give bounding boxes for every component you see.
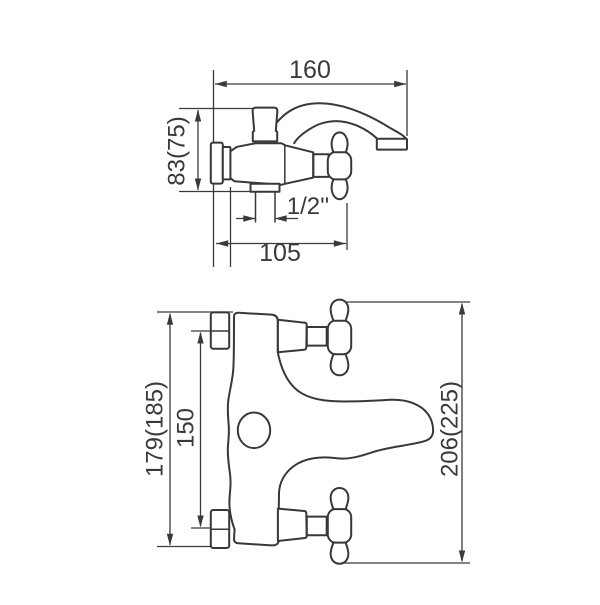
dim-overall-label: 179(185) <box>142 381 169 477</box>
arrow-left <box>215 81 227 87</box>
handle-hub-top <box>328 320 351 354</box>
dim-width-label: 160 <box>289 56 331 84</box>
spout-aerator <box>377 139 407 150</box>
arrow-right-in <box>243 215 255 221</box>
arrow-up <box>167 313 173 325</box>
handle-hub-bottom <box>328 509 351 543</box>
top-view-faucet <box>211 300 433 564</box>
handle-knob-bottom <box>332 179 348 199</box>
handle-bottom-knob-up <box>331 488 349 509</box>
arrow-right <box>394 81 406 87</box>
arrow-down <box>459 551 465 563</box>
supply-pipe-nut <box>251 184 280 192</box>
wall-flange-lip <box>223 147 231 179</box>
mixer-body <box>230 143 313 185</box>
handle-bottom-knob-down <box>331 543 349 564</box>
dim-height-label: 83(75) <box>164 116 191 185</box>
faucet-technical-drawing: 160 83(75) 1/2'' <box>0 0 600 600</box>
top-view: 179(185) 150 206(225) <box>142 300 471 564</box>
handle-knob-top <box>332 132 348 152</box>
dim-thread-label: 1/2'' <box>287 193 330 220</box>
arrow-up <box>195 110 201 122</box>
dim-thread-half-inch: 1/2'' <box>236 193 329 222</box>
arrow-down <box>195 179 201 191</box>
handle-stem <box>313 154 328 177</box>
dim-spacing-label: 150 <box>173 408 200 448</box>
valve-arm-bottom <box>278 509 307 541</box>
valve-arm-top <box>278 320 307 352</box>
handle-top-knob-down <box>331 354 349 375</box>
arrow-up <box>459 303 465 315</box>
side-view: 160 83(75) 1/2'' <box>164 56 408 267</box>
handle-hub <box>328 152 351 180</box>
wall-flange <box>211 143 223 184</box>
handle-stem-bottom <box>307 517 327 536</box>
dim-spacing-150: 150 <box>173 331 213 528</box>
arrow-up <box>197 332 203 344</box>
handle-stem-top <box>307 327 327 346</box>
arrow-left-in <box>275 215 287 221</box>
arrow-right <box>334 240 346 246</box>
handle-top-knob-up <box>331 300 349 321</box>
diverter-knob <box>253 108 278 142</box>
arrow-down <box>197 516 203 528</box>
dim-width-160: 160 <box>215 56 407 136</box>
dim-length-label: 206(225) <box>437 381 464 477</box>
dim-depth-label: 105 <box>259 239 301 267</box>
arrow-down <box>167 534 173 546</box>
arrow-left <box>216 240 228 246</box>
drawing-canvas: 160 83(75) 1/2'' <box>0 0 600 600</box>
